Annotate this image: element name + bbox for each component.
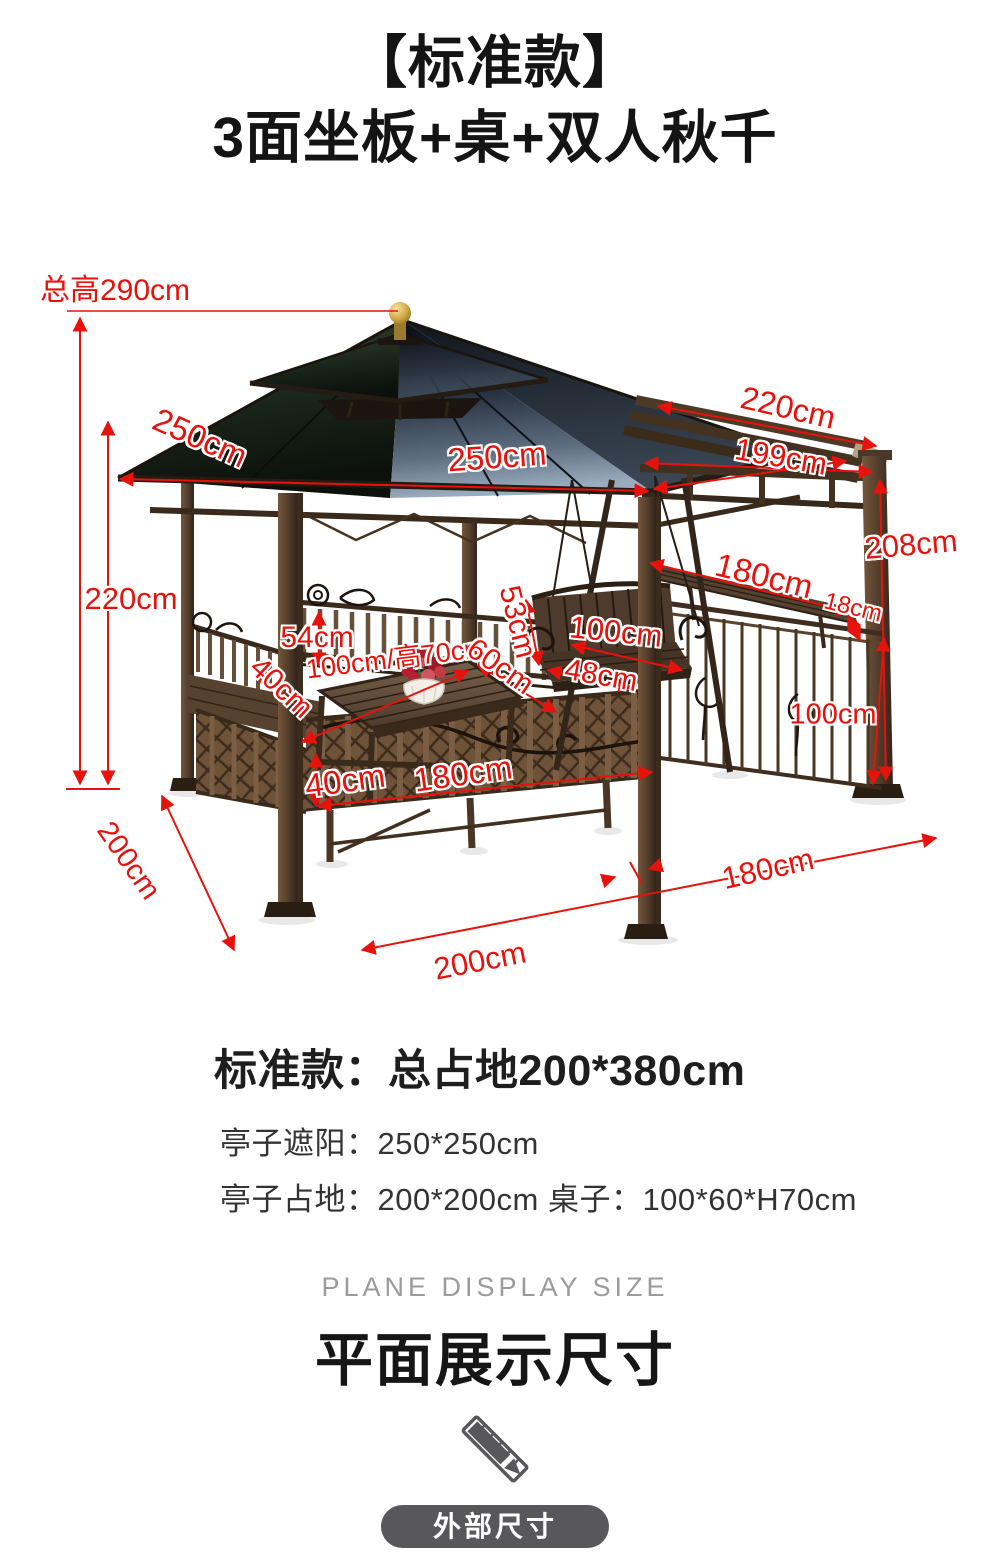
dim-total-height: 总高290cm xyxy=(40,265,190,309)
right-fence xyxy=(658,602,884,788)
dimension-figure: 总高290cm 250cm 250cm 220cm 199cm 208cm 18… xyxy=(0,250,990,1012)
footer-subtitle-en: PLANE DISPLAY SIZE xyxy=(0,1272,990,1303)
dim-post-height: 220cm xyxy=(84,581,177,617)
dim-roof-front: 250cm xyxy=(446,435,547,480)
page-title: 【标准款】 3面坐板+桌+双人秋千 xyxy=(0,26,990,176)
finial-ball-icon xyxy=(389,302,411,324)
exterior-size-badge: 外部尺寸 xyxy=(381,1505,609,1548)
footer-title-cn: 平面展示尺寸 xyxy=(0,1313,990,1397)
ruler-pencil-icon xyxy=(451,1409,539,1493)
product-dimension-page: 【标准款】 3面坐板+桌+双人秋千 xyxy=(0,0,990,1563)
spec-line-footprint: 亭子占地：200*200cm 桌子：100*60*H70cm xyxy=(220,1174,857,1219)
dim-fence-height: 100cm xyxy=(789,699,876,732)
spec-heading: 标准款：总占地200*380cm xyxy=(214,1036,857,1098)
spec-line-shade: 亭子遮阳：250*250cm xyxy=(220,1118,857,1163)
spec-block: 标准款：总占地200*380cm 亭子遮阳：250*250cm 亭子占地：200… xyxy=(214,1036,857,1219)
title-line2: 3面坐板+桌+双人秋千 xyxy=(0,101,990,176)
title-line1: 【标准款】 xyxy=(0,26,990,101)
footer-section: PLANE DISPLAY SIZE 平面展示尺寸 外部尺寸 xyxy=(0,1272,990,1548)
